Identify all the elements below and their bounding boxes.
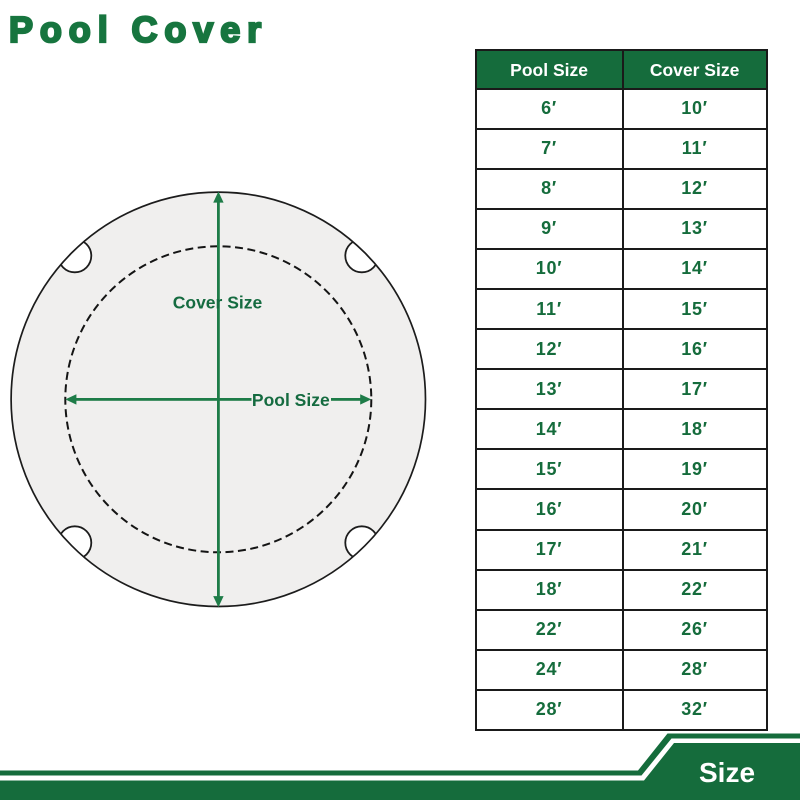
svg-text:Size: Size (699, 757, 755, 788)
